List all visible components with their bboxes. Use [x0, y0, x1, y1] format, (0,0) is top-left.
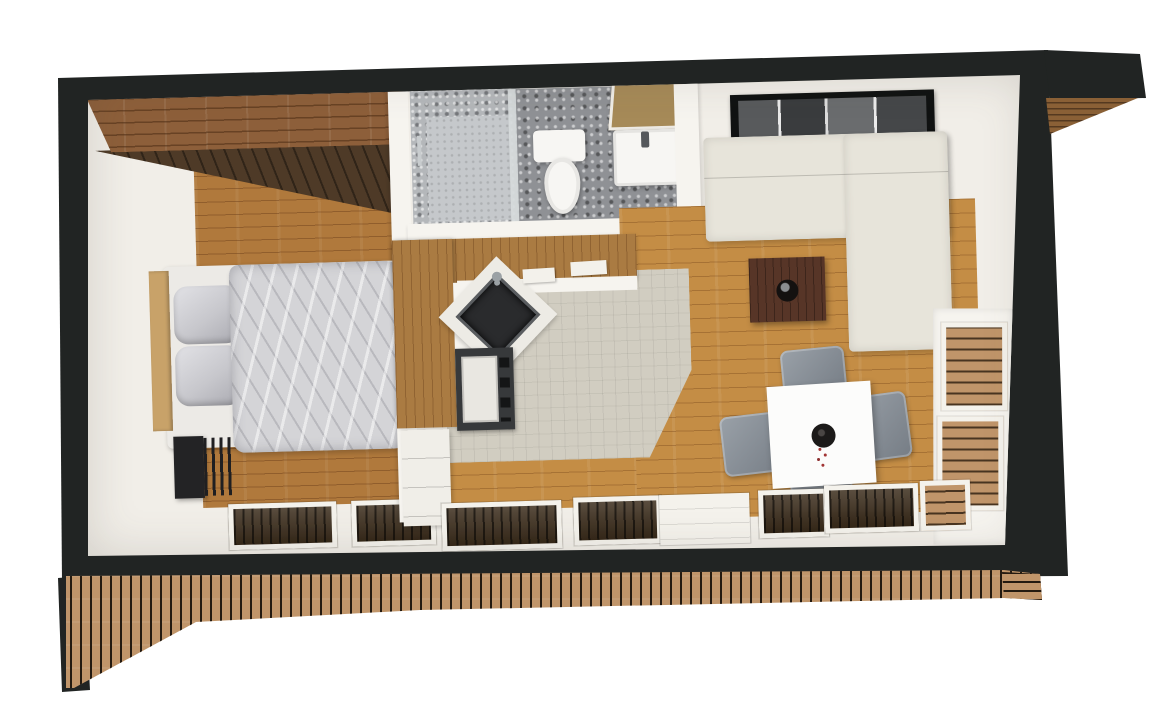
- deck-slat-opening: [941, 322, 1007, 410]
- south-window: [758, 489, 829, 539]
- south-window: [824, 483, 919, 534]
- shower-fixture: [417, 136, 422, 166]
- bedroom: [81, 78, 439, 569]
- bedroom-window: [228, 501, 337, 550]
- bed-duvet: [228, 260, 409, 453]
- oven-door: [461, 356, 499, 423]
- vanity-faucet: [641, 131, 649, 147]
- serving-board: [522, 268, 555, 284]
- wardrobe: [173, 436, 205, 499]
- corner-window: [920, 480, 971, 531]
- south-window: [441, 500, 562, 551]
- counter-left-run: [392, 239, 457, 429]
- entry-door: [659, 493, 750, 545]
- floor-plan-render: [0, 0, 1170, 718]
- shower-floor: [426, 115, 513, 221]
- vase-sprig: [818, 448, 821, 451]
- interior-floorplate: [88, 74, 1028, 556]
- south-window: [573, 495, 662, 545]
- kitchen: [386, 220, 714, 529]
- wardrobe-hangers: [203, 437, 233, 496]
- stove-knobs: [499, 357, 511, 421]
- serving-board: [570, 260, 607, 276]
